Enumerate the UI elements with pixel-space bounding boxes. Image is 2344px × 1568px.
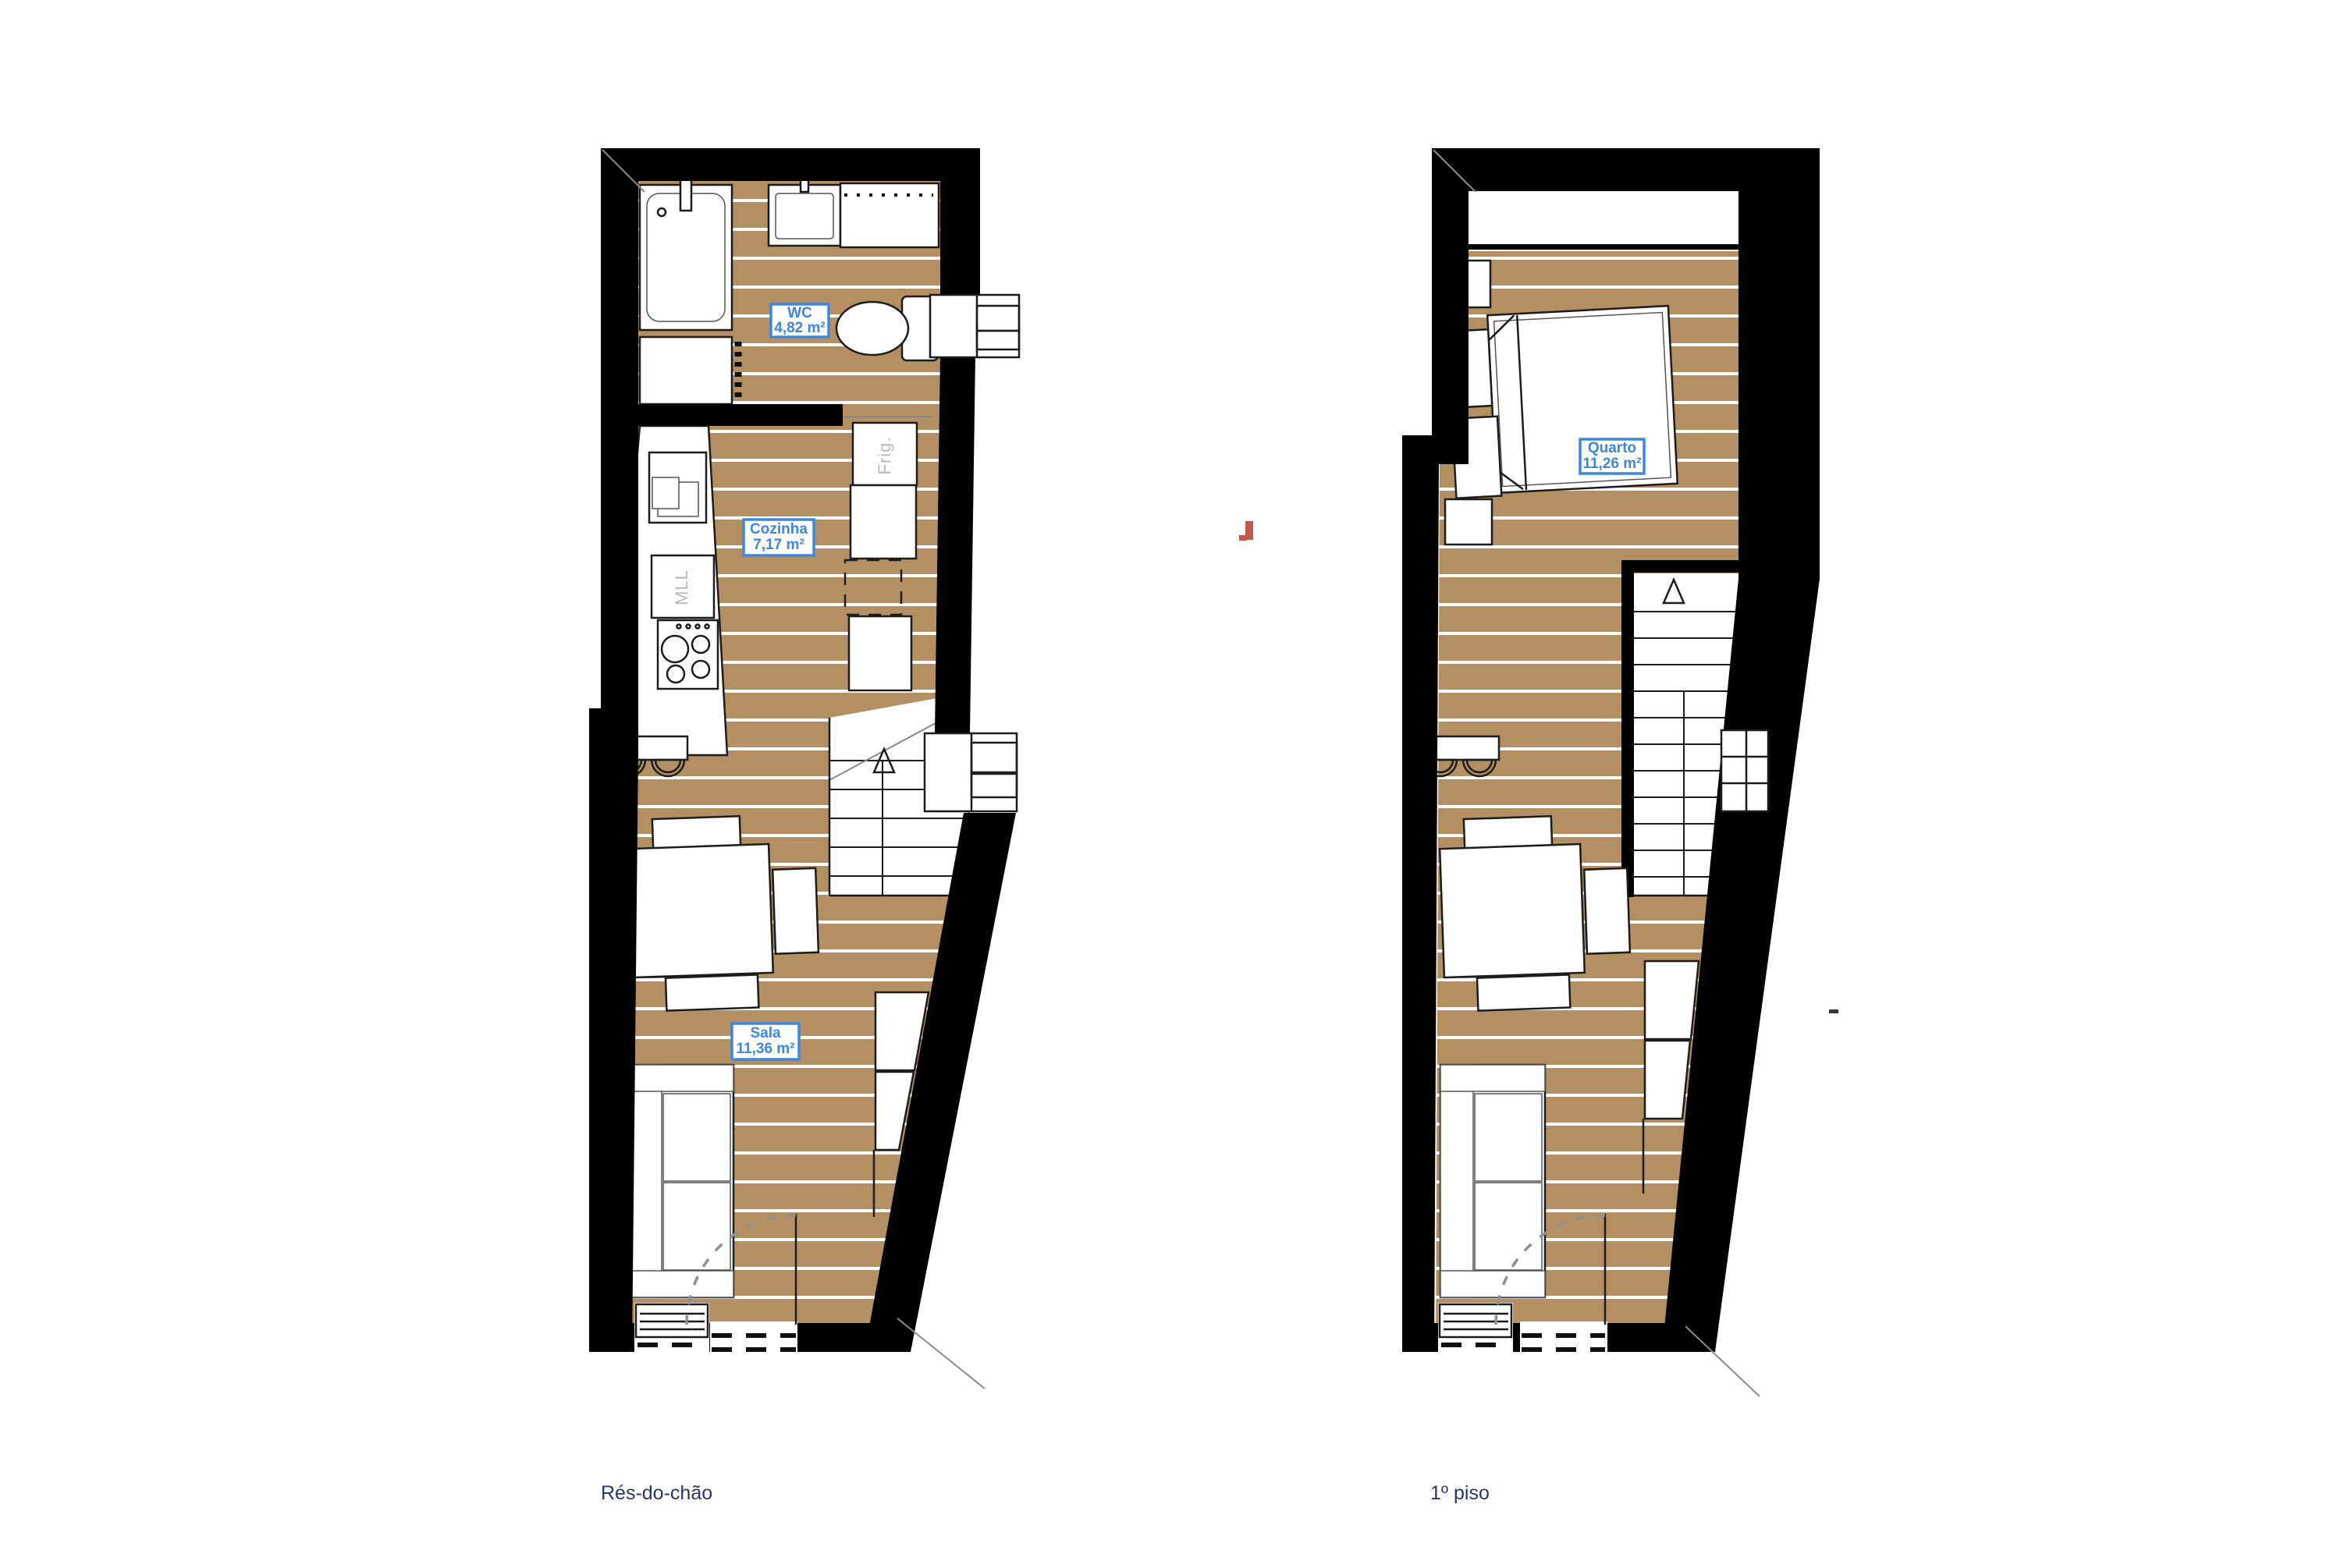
room-label-sala: Sala 11,36 m² (732, 1023, 799, 1059)
fridge: Frig. (853, 423, 917, 485)
room-area: 4,82 m² (774, 320, 825, 336)
floor-plan-sheet: MLL Frig. (0, 0, 2344, 1568)
room-label-wc: WC 4,82 m² (771, 304, 829, 337)
dash-mark (1829, 1009, 1838, 1013)
window (925, 733, 1017, 811)
window (930, 295, 1019, 357)
room-area: 11,36 m² (737, 1041, 795, 1057)
closet (1469, 191, 1738, 246)
counter (851, 485, 916, 559)
bathtub (640, 179, 732, 330)
wall-top (1432, 148, 1740, 191)
wall-left-upper (1432, 148, 1469, 460)
room-label-cozinha: Cozinha 7,17 m² (744, 520, 814, 555)
counter (849, 616, 911, 690)
wall-right-upper (1738, 148, 1820, 579)
wall-left-jog (589, 708, 638, 753)
red-mark (1239, 521, 1253, 541)
wall-left-lower (589, 749, 638, 1352)
wall-right-a (940, 148, 980, 296)
interior-wall (638, 404, 843, 426)
chair (666, 975, 758, 1011)
room-area: 11,26 m² (1583, 456, 1642, 472)
room-label-quarto: Quarto 11,26 m² (1580, 439, 1644, 474)
fridge-label: Frig. (875, 437, 894, 475)
break-line (1685, 1326, 1760, 1396)
floor-plan-first: Quarto 11,26 m² 1º piso (1402, 148, 1820, 1504)
room-name: WC (787, 305, 812, 321)
stair-wall-top (1621, 560, 1738, 573)
window-bottom (1438, 1303, 1513, 1352)
wall-left-jog (1402, 435, 1469, 464)
room-name: Sala (750, 1025, 781, 1041)
toilet (836, 296, 938, 360)
counter (840, 183, 939, 247)
caption-first-floor: 1º piso (1430, 1482, 1490, 1504)
stove (658, 620, 718, 689)
chair (772, 868, 819, 954)
wall-right-b (935, 355, 975, 733)
dining-table (1440, 844, 1585, 977)
closet-line (1469, 244, 1738, 250)
wall-left (601, 148, 638, 732)
chair (1477, 975, 1570, 1011)
window-bottom (634, 1303, 709, 1352)
room-name: Cozinha (750, 521, 808, 537)
chair (1584, 868, 1630, 954)
dining-table (628, 844, 773, 977)
break-line (897, 1318, 985, 1389)
caption-ground-floor: Rés-do-chão (601, 1482, 712, 1504)
wall-left-lower (1402, 464, 1439, 1352)
room-area: 7,17 m² (753, 537, 804, 553)
stair-wall-left (1621, 560, 1634, 897)
kitchen-sink (649, 452, 706, 523)
wall-top (601, 148, 980, 181)
nightstand (1445, 499, 1492, 545)
floor-plan-ground: MLL Frig. (589, 148, 1019, 1504)
sofa (1440, 1065, 1545, 1297)
room-name: Quarto (1588, 440, 1636, 456)
dishwasher-label: MLL (672, 569, 691, 605)
washbasin (769, 178, 840, 246)
bathroom-cabinet (640, 337, 732, 404)
sofa (629, 1065, 733, 1297)
window (1721, 730, 1768, 811)
dishwasher: MLL (652, 555, 714, 618)
